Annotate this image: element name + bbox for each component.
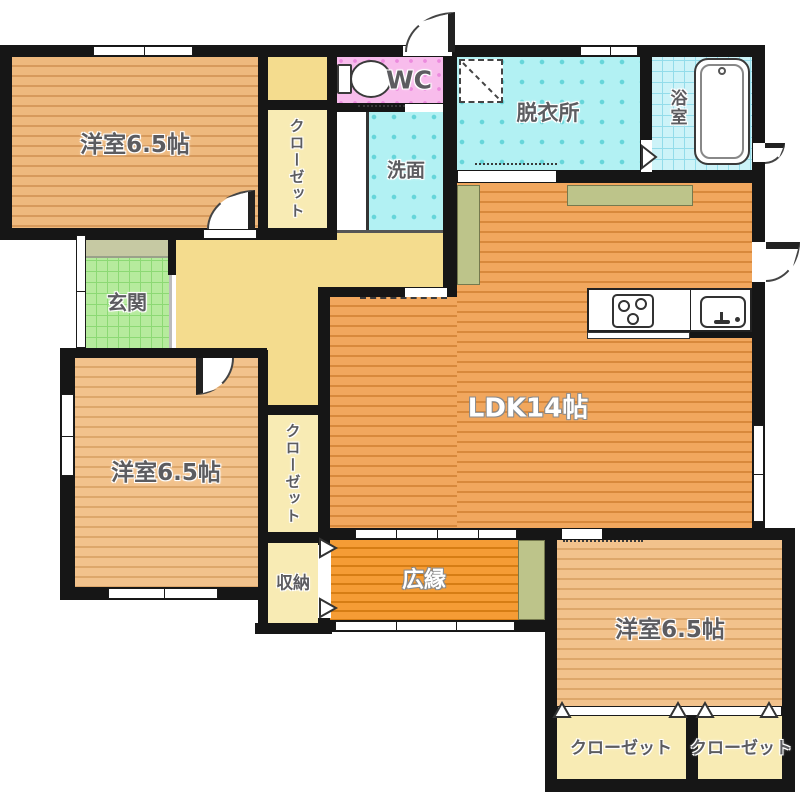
- door-gap-wc: [405, 104, 443, 112]
- floor-plan: 洋室6.5帖 洋室6.5帖 洋室6.5帖 LDK14帖 WC 洗面 脱衣所 浴室…: [0, 0, 800, 800]
- wall-closet-top-left: [258, 57, 268, 228]
- washroom-label: 洗面: [387, 156, 425, 183]
- closet-top-label: クローゼット: [287, 118, 308, 220]
- room-bottom-left-label: 洋室6.5帖: [111, 453, 221, 487]
- storage-nook-floor: [337, 112, 366, 230]
- door-arc-top-exterior: [405, 12, 455, 52]
- window-veranda-bottom: [335, 621, 515, 631]
- wall-closet-top-top: [258, 100, 335, 110]
- dressing-room-label: 脱衣所: [517, 97, 580, 127]
- stove-icon: [612, 294, 654, 328]
- sliding-row-ldk-veranda: [355, 529, 517, 539]
- room-top-left-label: 洋室6.5帖: [80, 125, 190, 159]
- room-bottom-right-label: 洋室6.5帖: [615, 610, 725, 644]
- bathtub-drain-icon: [718, 67, 726, 75]
- wall-room-br-bottom: [545, 779, 795, 792]
- window-room-bl-bottom: [108, 588, 218, 599]
- door-gap-dressing: [458, 171, 556, 182]
- hallway-floor-left: [176, 287, 318, 350]
- bathtub-icon: [694, 58, 750, 165]
- sliding-track-room-br: [563, 540, 643, 542]
- door-gap-bath: [641, 140, 652, 172]
- ldk-floor-upper: [457, 183, 752, 528]
- kitchen-cabinet-vertical: [457, 185, 480, 285]
- wall-room-br-left: [545, 528, 557, 792]
- door-strip-storage: [318, 545, 331, 618]
- washing-machine-icon: [459, 59, 503, 103]
- wall-left-top: [0, 45, 12, 240]
- sink-icon: [700, 296, 746, 328]
- kitchen-counter-front: [587, 332, 690, 339]
- wall-closet-middle-top: [258, 405, 330, 415]
- wall-entrance-right: [168, 233, 176, 275]
- wall-storage-washroom: [366, 112, 369, 230]
- door-gap-hall-ldk: [405, 288, 447, 297]
- wc-label: WC: [386, 66, 432, 95]
- entrance-hall-open-line: [169, 275, 172, 348]
- corridor-above-closet: [268, 57, 327, 100]
- door-arc-bath-vent: [765, 143, 785, 164]
- closet-br1-label: クローゼット: [570, 734, 672, 759]
- door-arc-ldk-right: [766, 242, 800, 282]
- sliding-track-dressing: [475, 163, 557, 165]
- hallway-floor: [176, 233, 443, 287]
- entrance-label: 玄関: [107, 287, 147, 316]
- entrance-step-line: [86, 256, 170, 258]
- window-room-tl-top: [93, 46, 193, 56]
- sliding-row-closets-br: [557, 706, 782, 716]
- sliding-track-hall-ldk: [360, 297, 447, 299]
- window-room-bl-left: [61, 394, 74, 476]
- wall-washroom-bottom: [337, 230, 443, 233]
- kitchen-cabinet-horizontal: [567, 185, 693, 206]
- window-dressing-top: [580, 46, 638, 56]
- bathroom-label: 浴室: [665, 89, 690, 127]
- ldk-label: LDK14帖: [468, 388, 588, 425]
- closet-br2-label: クローゼット: [690, 734, 792, 759]
- entrance-door: [76, 235, 86, 348]
- storage-label: 収納: [276, 569, 310, 594]
- veranda-side-counter: [518, 540, 545, 620]
- wall-wc-column: [327, 45, 337, 240]
- window-ldk-right: [753, 425, 764, 522]
- wall-closet-column-left: [258, 350, 268, 634]
- closet-middle-label: クローゼット: [283, 423, 304, 525]
- door-gap-room-br: [562, 529, 602, 539]
- sliding-track-wc: [358, 105, 405, 107]
- wall-room-bl-top: [60, 348, 267, 358]
- bathtub-inner: [700, 64, 744, 159]
- door-gap-room-tl: [203, 229, 257, 239]
- ldk-floor-lower: [330, 297, 457, 528]
- door-gap-ldk-right: [752, 242, 765, 282]
- veranda-label: 広縁: [402, 562, 446, 594]
- vent-gap-bath: [753, 143, 765, 162]
